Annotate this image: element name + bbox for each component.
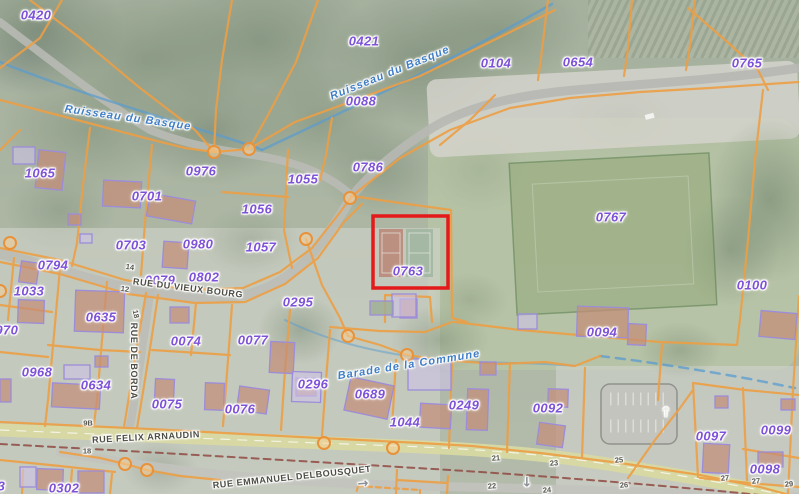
- parcel-label-1057[interactable]: 1057: [246, 240, 277, 255]
- house-number-23: 23: [550, 458, 559, 468]
- parcel-label-0767[interactable]: 0767: [596, 210, 627, 225]
- water-label-barade-de-la-commune-3: Barade de la Commune: [337, 348, 481, 382]
- parcel-label-0634[interactable]: 0634: [81, 378, 112, 393]
- parcel-label-0249[interactable]: 0249: [449, 398, 480, 413]
- street-label-rue-de-borda: RUE DE BORDA: [129, 323, 139, 400]
- parcel-label-0098[interactable]: 0098: [750, 462, 781, 477]
- parcel-label-0076[interactable]: 0076: [225, 402, 256, 417]
- street-label-rue-emmanuel-delbousquet: RUE EMMANUEL DELBOUSQUET: [212, 464, 371, 491]
- one-way-down-arrow: ↓: [522, 476, 533, 491]
- parcel-label-1056[interactable]: 1056: [242, 202, 273, 217]
- parcel-label-1033[interactable]: 1033: [14, 284, 45, 299]
- house-number-29: 29: [785, 479, 794, 489]
- house-number-18: 18: [131, 309, 142, 319]
- parcel-label-1044[interactable]: 1044: [390, 415, 421, 430]
- map-canvas[interactable]: 0420042101040654076500881065097610550786…: [0, 0, 799, 494]
- parcel-label-0077[interactable]: 0077: [238, 333, 269, 348]
- house-number-24: 24: [543, 485, 552, 494]
- house-number-27: 27: [721, 473, 730, 483]
- parcel-label-0968[interactable]: 0968: [22, 365, 53, 380]
- parcel-label-0635[interactable]: 0635: [86, 310, 117, 325]
- house-number-21: 21: [492, 453, 501, 463]
- parcel-label-0765[interactable]: 0765: [732, 56, 763, 71]
- parcel-label-0970[interactable]: 0970: [0, 323, 18, 338]
- parcel-label-0420[interactable]: 0420: [21, 8, 52, 23]
- parcel-label-1055[interactable]: 1055: [288, 172, 319, 187]
- house-number-25: 25: [615, 455, 624, 465]
- parcel-label-0703[interactable]: 0703: [116, 238, 147, 253]
- parcel-label-0763[interactable]: 0763: [393, 264, 424, 279]
- house-number-27: 27: [752, 476, 761, 486]
- one-way-right-arrow: →: [357, 476, 369, 492]
- parcel-label-0296[interactable]: 0296: [298, 377, 329, 392]
- parcel-label-0099[interactable]: 0099: [761, 423, 792, 438]
- house-number-12: 12: [120, 284, 130, 294]
- parcel-label-0295[interactable]: 0295: [283, 295, 314, 310]
- parcel-label-0794[interactable]: 0794: [38, 258, 69, 273]
- parcel-label-0786[interactable]: 0786: [353, 160, 384, 175]
- street-label-rue-felix-arnaudin: RUE FELIX ARNAUDIN: [92, 429, 200, 445]
- parcel-label-0654[interactable]: 0654: [563, 55, 594, 70]
- labels-layer: 0420042101040654076500881065097610550786…: [0, 0, 799, 494]
- parcel-label-0092[interactable]: 0092: [533, 401, 564, 416]
- parcel-label-0100[interactable]: 0100: [737, 278, 768, 293]
- parcel-label-0104[interactable]: 0104: [481, 56, 512, 71]
- parcel-label-0302[interactable]: 0302: [49, 481, 80, 494]
- parcel-label-0802[interactable]: 0802: [189, 270, 220, 285]
- water-label-ruisseau-du-basque-1: Ruisseau du Basque: [64, 103, 192, 133]
- parcel-label-0701[interactable]: 0701: [132, 189, 163, 204]
- parking-direction-arrow: ↑: [661, 406, 672, 421]
- parcel-label-0094[interactable]: 0094: [587, 325, 618, 340]
- parcel-label-0097[interactable]: 0097: [696, 429, 727, 444]
- parcel-label-0689[interactable]: 0689: [355, 387, 386, 402]
- parcel-label-0303[interactable]: 0303: [0, 479, 5, 494]
- parcel-label-0421[interactable]: 0421: [349, 34, 380, 49]
- parcel-label-0075[interactable]: 0075: [152, 397, 183, 412]
- house-number-14: 14: [125, 262, 135, 272]
- house-number-26: 26: [620, 480, 629, 490]
- house-number-22: 22: [488, 481, 497, 491]
- water-label-ruisseau-du-basque-2: Ruisseau du Basque: [328, 43, 451, 102]
- parcel-label-1065[interactable]: 1065: [25, 166, 56, 181]
- house-number-18: 18: [83, 447, 91, 456]
- parcel-label-0976[interactable]: 0976: [186, 164, 217, 179]
- house-number-9B: 9B: [83, 419, 93, 428]
- parcel-label-0980[interactable]: 0980: [183, 237, 214, 252]
- parcel-label-0074[interactable]: 0074: [171, 334, 202, 349]
- parcel-label-0088[interactable]: 0088: [346, 94, 377, 109]
